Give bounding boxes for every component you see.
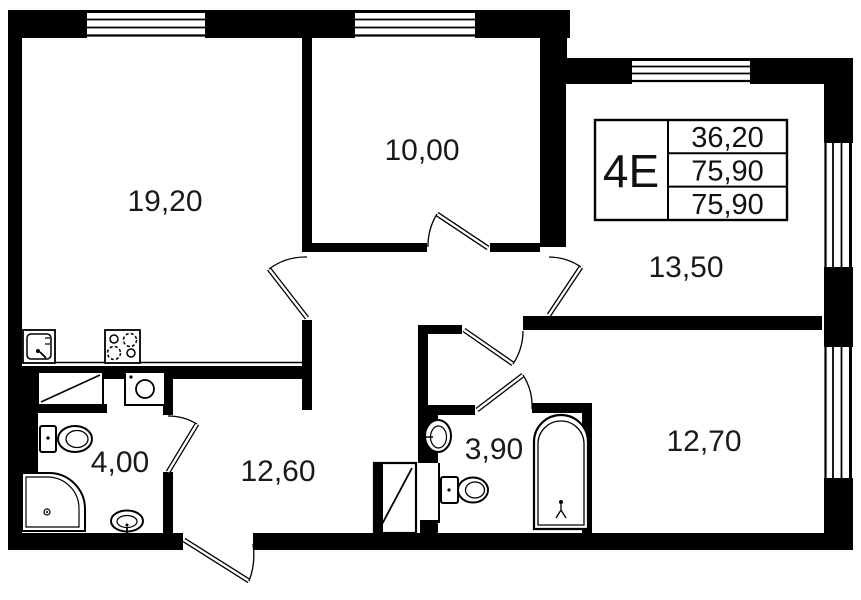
door-living-room	[269, 257, 307, 318]
window-top-middle-icon	[355, 12, 475, 36]
label-hallway: 12,60	[240, 455, 315, 488]
window-top-left-icon	[87, 12, 205, 36]
wardrobe-icon	[373, 462, 416, 533]
ventilation-shaft-icon	[38, 372, 103, 405]
window-right-lower-icon	[826, 347, 851, 478]
label-bathroom-tub: 3,90	[465, 433, 523, 466]
washing-machine-icon	[125, 372, 165, 405]
label-room-upper-right: 13,50	[648, 251, 723, 284]
label-living-kitchen: 19,20	[127, 185, 202, 218]
toilet-2-icon	[441, 477, 488, 503]
stove-icon	[105, 330, 140, 363]
label-room-lower-right: 12,70	[666, 425, 741, 458]
bathtub-icon	[534, 415, 588, 529]
unit-type-label: 4E	[603, 145, 659, 197]
label-bedroom: 10,00	[384, 134, 459, 167]
unit-area-total: 75,90	[691, 156, 764, 188]
corner-shower-icon	[22, 473, 85, 531]
kitchen-sink-icon	[23, 330, 55, 363]
unit-area-living: 36,20	[691, 122, 764, 154]
unit-area-total-2: 75,90	[691, 189, 764, 221]
door-entrance	[184, 540, 254, 581]
door-bedroom	[428, 214, 488, 248]
wash-basin-small-icon	[111, 511, 143, 534]
door-bathroom-shower	[168, 416, 197, 472]
window-right-upper-icon	[826, 143, 851, 267]
door-bathroom-tub	[477, 375, 532, 410]
floor-plan-drawing: 4E 36,20 75,90 75,90 19,20 10,00 13,50 1…	[0, 0, 861, 600]
floor-plan: 4E 36,20 75,90 75,90 19,20 10,00 13,50 1…	[0, 0, 861, 600]
toilet-icon	[40, 426, 92, 452]
door-room-upper-right	[549, 257, 581, 315]
window-top-right-icon	[632, 60, 750, 82]
wash-basin-icon	[424, 420, 451, 452]
door-alcove	[464, 330, 523, 364]
label-bathroom-shower: 4,00	[91, 446, 149, 479]
title-block: 4E 36,20 75,90 75,90	[595, 120, 787, 221]
